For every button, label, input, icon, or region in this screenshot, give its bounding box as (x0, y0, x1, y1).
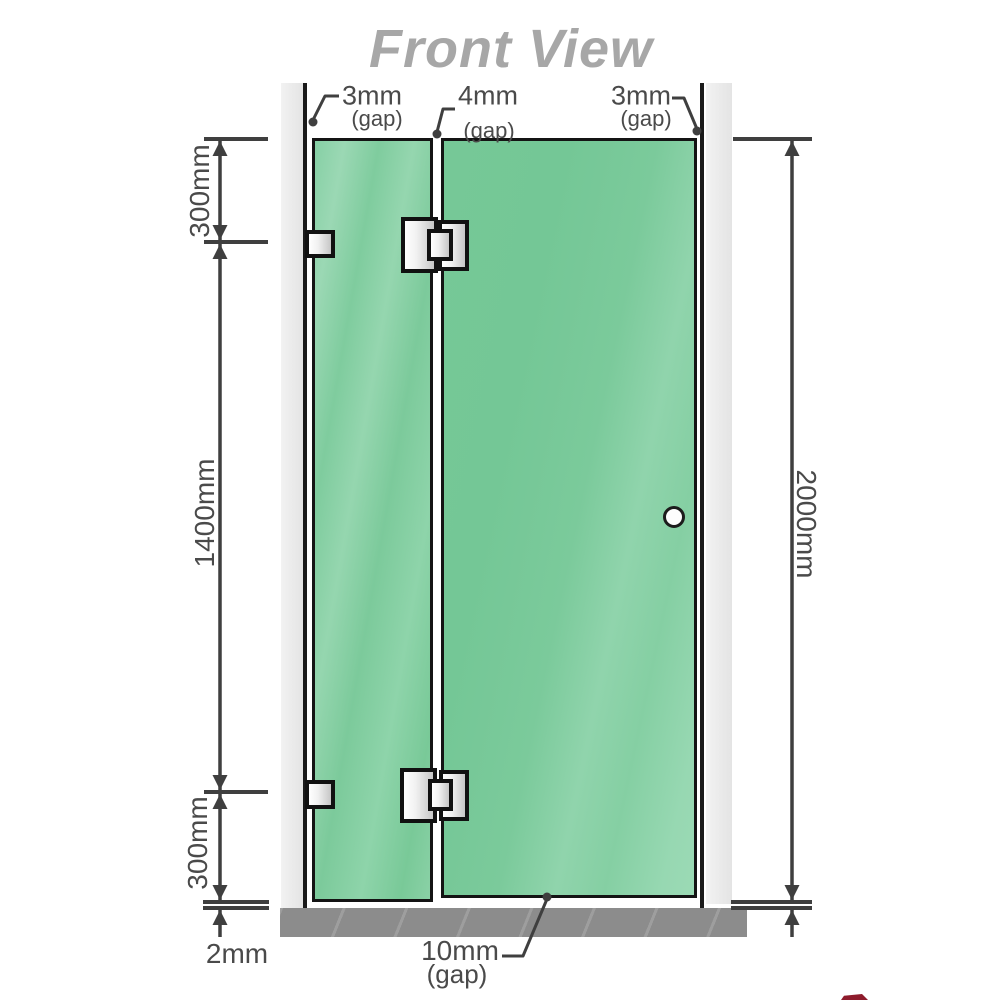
label-gap-top-middle-suffix: (gap) (463, 120, 514, 142)
arrow-up-icon (213, 244, 228, 259)
corner-logo-fragment (838, 994, 868, 1000)
label-gap-top-right-suffix: (gap) (620, 108, 671, 130)
top-wall-bracket (305, 230, 335, 258)
label-dim-left-middle: 1400mm (191, 459, 219, 568)
right-wall-channel (706, 83, 732, 904)
label-dim-left-top: 300mm (186, 144, 214, 237)
leader-gap-top-middle (437, 109, 455, 132)
page-title: Front View (11, 18, 1000, 80)
arrow-down-icon (213, 775, 228, 790)
bottom-hinge-tab (428, 779, 453, 811)
floor-base (280, 908, 747, 937)
arrow-up-icon (213, 910, 228, 925)
arrow-up-icon (785, 910, 800, 925)
label-gap-bottom-suffix: (gap) (427, 961, 488, 987)
arrow-up-icon (213, 794, 228, 809)
leader-dot-icon (309, 118, 318, 127)
label-dim-right-total: 2000mm (792, 470, 820, 579)
label-gap-top-middle-value: 4mm (458, 83, 518, 110)
bottom-wall-bracket (305, 780, 335, 809)
right-wall-edge-line (700, 83, 704, 908)
arrow-up-icon (785, 141, 800, 156)
leader-gap-top-left (313, 96, 339, 120)
top-hinge-tab (427, 229, 453, 261)
label-gap-top-left-suffix: (gap) (351, 108, 402, 130)
leader-gap-top-right (672, 98, 697, 129)
arrow-down-icon (785, 885, 800, 900)
front-view-diagram: Front View (0, 0, 1000, 1000)
arrow-down-icon (213, 885, 228, 900)
door-panel-glass (441, 138, 697, 898)
label-dim-floor-gap: 2mm (206, 940, 268, 968)
left-wall-channel (281, 83, 303, 908)
label-dim-left-bottom: 300mm (184, 796, 212, 889)
door-knob (663, 506, 685, 528)
